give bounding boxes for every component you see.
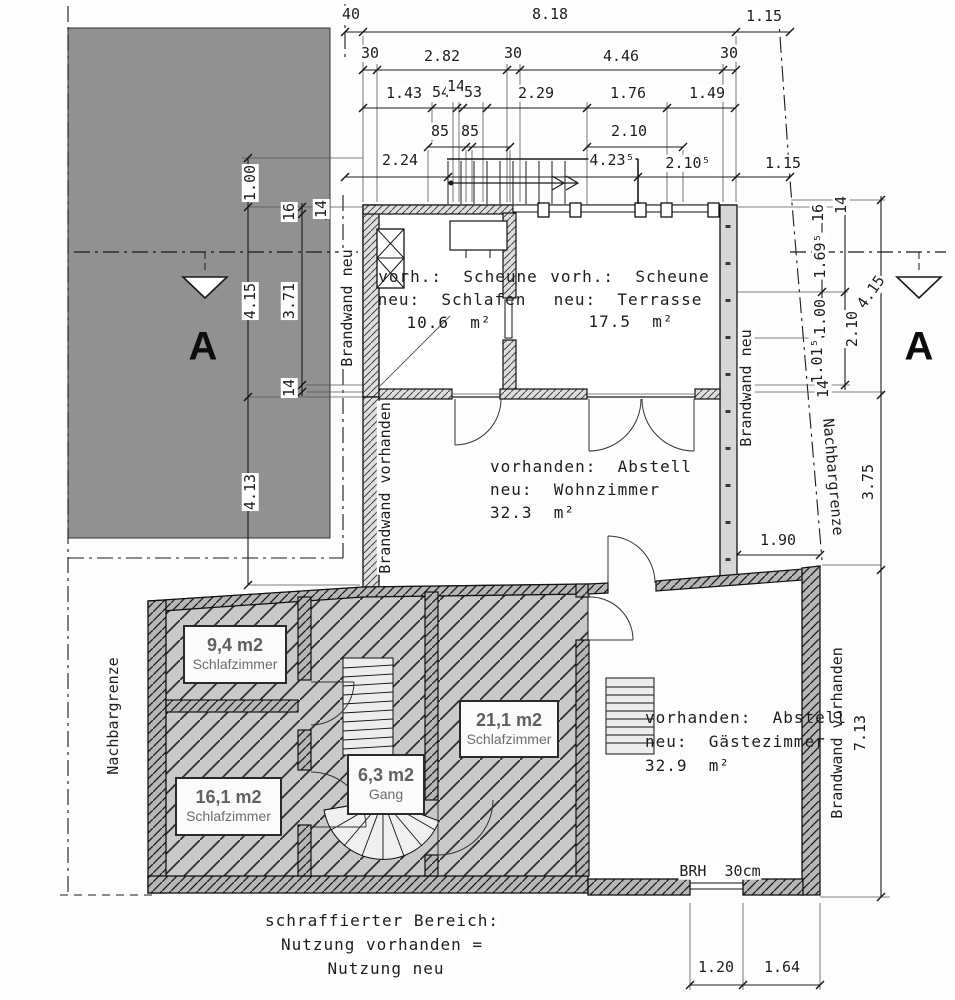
dim-375-right: 3.75	[860, 463, 877, 501]
dim-16-left: 16	[281, 202, 298, 222]
section-a-left-label: A	[188, 325, 219, 370]
room-wohnzimmer-line1: vorhanden: Abstell	[489, 458, 693, 476]
dim-14-right-top: 14	[833, 195, 850, 215]
door-arcs-upper	[455, 399, 694, 451]
dim-100-right: 1.00	[812, 298, 829, 336]
dim-14-right-bottom: 14	[815, 379, 832, 399]
room-schlafen-line2: neu: Schlafen	[377, 291, 528, 309]
room-gaestezimmer-line2: neu: Gästezimmer	[644, 733, 827, 751]
tag-area: 16,1 m2	[195, 788, 261, 808]
dim-14-left-top: 14	[313, 199, 330, 219]
dim-40: 40	[341, 6, 361, 23]
window-brh	[690, 879, 743, 895]
dim-210-right: 2.10	[844, 310, 861, 348]
nachbargrenze-left-label: Nachbargrenze	[105, 656, 122, 775]
tag-schlafzimmer-94: 9,4 m2 Schlafzimmer	[183, 625, 287, 684]
tag-name: Schlafzimmer	[467, 732, 552, 747]
tag-schlafzimmer-161: 16,1 m2 Schlafzimmer	[175, 777, 282, 836]
room-wohnzimmer-line2: neu: Wohnzimmer	[489, 481, 661, 499]
dim-229: 2.29	[517, 85, 555, 102]
room-terrasse-line1: vorh.: Scheune	[549, 268, 711, 286]
dim-115-top: 1.15	[745, 8, 783, 25]
dim-30a: 30	[360, 45, 380, 62]
room-gaestezimmer-line1: vorhanden: Abstell	[644, 709, 848, 727]
section-a-right-label: A	[904, 325, 935, 370]
tag-schlafzimmer-211: 21,1 m2 Schlafzimmer	[459, 700, 559, 758]
dim-164-bottom: 1.64	[763, 959, 801, 976]
scheune-building	[363, 203, 737, 583]
tag-name: Schlafzimmer	[186, 809, 271, 824]
dim-1015-right: 1.01⁵	[809, 337, 826, 384]
dim-85a: 85	[430, 123, 450, 140]
dim-16-right: 16	[810, 203, 827, 223]
dim-120-bottom: 1.20	[697, 959, 735, 976]
room-wohnzimmer-area: 32.3 m²	[489, 504, 576, 522]
legend-line1: schraffierter Bereich:	[264, 912, 500, 930]
tag-area: 9,4 m2	[207, 636, 263, 656]
tag-area: 21,1 m2	[476, 711, 542, 731]
dim-2105: 2.10⁵	[664, 155, 711, 172]
room-terrasse-line2: neu: Terrasse	[553, 291, 704, 309]
dim-282: 2.82	[423, 48, 461, 65]
room-gaestezimmer-area: 32.9 m²	[644, 757, 731, 775]
dim-149: 1.49	[688, 85, 726, 102]
dim-4235: 4.23⁵	[588, 152, 635, 169]
brandwand-neu-right-label: Brandwand neu	[738, 328, 755, 447]
dim-415-left: 4.15	[242, 282, 259, 320]
dim-210-top: 2.10	[610, 123, 648, 140]
dim-818: 8.18	[531, 6, 569, 23]
room-schlafen-line1: vorh.: Scheune	[377, 268, 539, 286]
brandwand-neu-left-label: Brandwand neu	[339, 248, 356, 367]
dim-176: 1.76	[609, 85, 647, 102]
tag-area: 6,3 m2	[358, 766, 414, 786]
tag-name: Gang	[369, 787, 403, 802]
tag-name: Schlafzimmer	[193, 657, 278, 672]
dim-413-left: 4.13	[242, 473, 259, 511]
dim-143: 1.43	[385, 85, 423, 102]
brh-label: BRH 30cm	[678, 863, 761, 880]
dim-115b: 1.15	[764, 155, 802, 172]
dim-371-left: 3.71	[281, 282, 298, 320]
dim-30c: 30	[719, 45, 739, 62]
room-terrasse-area: 17.5 m²	[587, 313, 674, 331]
dim-85b: 85	[460, 123, 480, 140]
straight-stair	[343, 658, 393, 755]
brandwand-vorhanden-right-label: Brandwand vorhanden	[829, 646, 846, 820]
dim-713-right: 7.13	[852, 714, 869, 752]
dim-100-left: 1.00	[242, 164, 259, 202]
floor-plan-drawing	[0, 0, 955, 1000]
dim-14-left-bottom: 14	[281, 378, 298, 398]
dim-190-right: 1.90	[759, 532, 797, 549]
dim-1695-right: 1.69⁵	[812, 232, 829, 279]
dim-446: 4.46	[602, 48, 640, 65]
dim-53: 53	[463, 84, 483, 101]
legend-line3: Nutzung neu	[327, 960, 446, 978]
legend-line2: Nutzung vorhanden =	[280, 936, 484, 954]
floor-plan-page: 40 8.18 1.15 30 2.82 30 4.46 30 1.43 54 …	[0, 0, 955, 1000]
brandwand-vorhanden-left-label: Brandwand vorhanden	[377, 401, 394, 575]
dim-30b: 30	[503, 45, 523, 62]
room-schlafen-area: 10.6 m²	[405, 314, 492, 332]
tag-gang-63: 6,3 m2 Gang	[347, 754, 425, 815]
dim-224: 2.24	[381, 152, 419, 169]
